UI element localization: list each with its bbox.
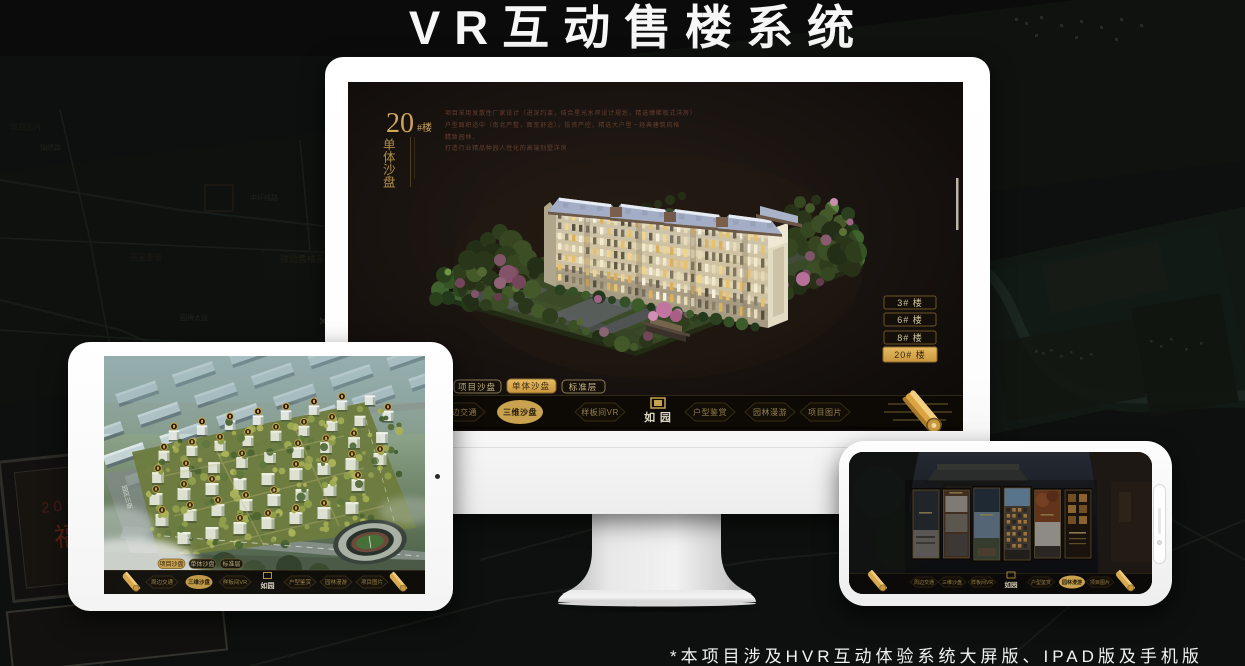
svg-text:项目沙盘: 项目沙盘 (458, 382, 496, 392)
svg-text:户型鉴赏: 户型鉴赏 (1031, 579, 1051, 586)
svg-text:周边交通: 周边交通 (914, 579, 934, 586)
svg-text:园林漫游: 园林漫游 (325, 578, 348, 586)
svg-text:如园: 如园 (1005, 580, 1019, 589)
svg-text:20# 楼: 20# 楼 (894, 349, 926, 360)
svg-text:项目沙盘: 项目沙盘 (159, 560, 183, 568)
svg-text:园林漫游: 园林漫游 (753, 407, 787, 417)
svg-text:户型面积适中（南北严整，面宽舒适），投资严控，精选大户型－经: 户型面积适中（南北严整，面宽舒适），投资严控，精选大户型－经典建筑风格 (445, 121, 680, 129)
svg-text:8# 楼: 8# 楼 (897, 332, 923, 343)
svg-text:园博大道: 园博大道 (180, 313, 208, 322)
svg-text:中环线路: 中环线路 (250, 193, 278, 202)
svg-text:项目图片: 项目图片 (808, 407, 842, 417)
svg-text:样板间VR: 样板间VR (971, 579, 993, 586)
svg-text:如 园: 如 园 (644, 410, 672, 424)
svg-text:标准层: 标准层 (569, 382, 598, 392)
svg-text:项目图片: 项目图片 (1090, 579, 1110, 586)
svg-text:园林漫游: 园林漫游 (1062, 579, 1082, 586)
svg-text:周边交通: 周边交通 (151, 578, 174, 586)
svg-text:单体沙盘: 单体沙盘 (190, 560, 214, 568)
svg-text:如园: 如园 (261, 581, 275, 590)
svg-text:锦绣路: 锦绣路 (40, 143, 61, 152)
svg-text:户型鉴赏: 户型鉴赏 (693, 407, 727, 417)
svg-text:户型鉴赏: 户型鉴赏 (289, 578, 312, 586)
svg-text:精致园林．: 精致园林． (445, 133, 479, 141)
svg-text:项目图片: 项目图片 (361, 578, 383, 586)
svg-text:3# 楼: 3# 楼 (897, 297, 923, 308)
svg-text:20: 20 (386, 108, 414, 139)
svg-text:三维沙盘: 三维沙盘 (503, 407, 537, 417)
svg-text:福星惠誉: 福星惠誉 (130, 252, 162, 262)
svg-text:标准层: 标准层 (222, 560, 240, 568)
svg-text:样板间VR: 样板间VR (223, 578, 247, 586)
svg-text:项目采用发散性厂家设计（进深约束，结合星光水岸设计规划，精选: 项目采用发散性厂家设计（进深约束，结合星光水岸设计规划，精选臻稀板式洋房） (445, 109, 697, 117)
svg-text:单体沙盘: 单体沙盘 (512, 381, 550, 391)
svg-text:三维沙盘: 三维沙盘 (942, 579, 962, 586)
svg-text:样板间VR: 样板间VR (581, 407, 619, 417)
svg-text:打造行业精品种园人性化的高端别墅洋房: 打造行业精品种园人性化的高端别墅洋房 (445, 144, 567, 152)
svg-text:盘: 盘 (383, 175, 396, 190)
svg-text:项目图片: 项目图片 (10, 122, 42, 132)
svg-text:三维沙盘: 三维沙盘 (188, 578, 211, 586)
svg-text:#楼: #楼 (417, 121, 432, 134)
svg-text:6# 楼: 6# 楼 (897, 314, 923, 325)
